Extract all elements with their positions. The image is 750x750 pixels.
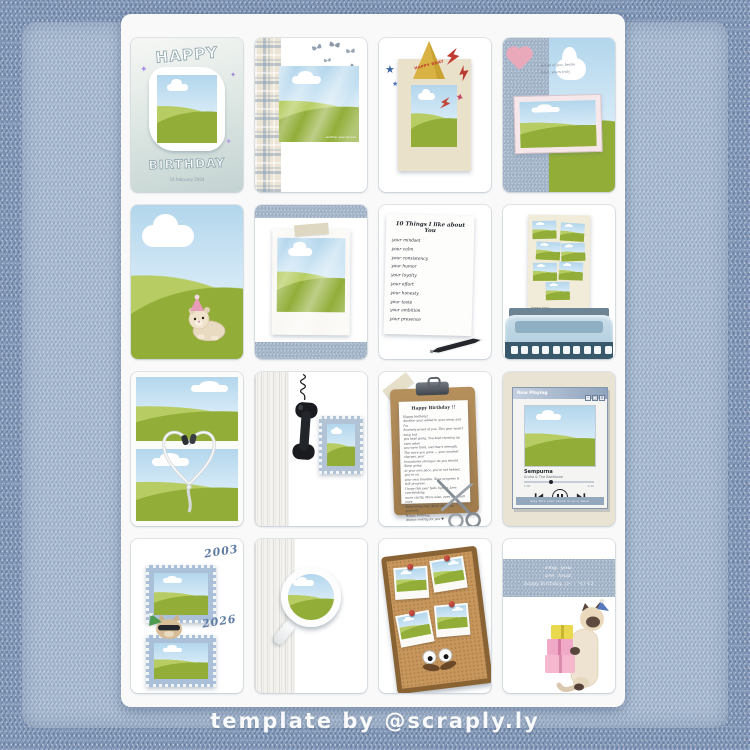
list-note-card: 10 Things I like about You your mindsety…	[379, 205, 491, 359]
birthday-text: BIRTHDAY	[131, 155, 243, 173]
star-icon: ★	[392, 81, 398, 88]
credit-caption: template by @scraply.ly	[0, 709, 750, 733]
landscape-photo	[519, 100, 596, 148]
list-items: your mindsetyour calmyour consistencyyou…	[390, 237, 468, 327]
message-line: are. loud.	[503, 572, 615, 580]
heart-frame-card: proud of you, bestie from, yours truly	[503, 38, 615, 192]
photo-caption: another year w/ you	[326, 135, 356, 139]
song-artist: Andra & The Backbone	[524, 475, 563, 479]
party-hamster-icon	[181, 293, 229, 341]
caption-line: old (O _ O )	[301, 663, 363, 671]
typewriter-keys	[511, 346, 612, 354]
landscape-photo	[432, 558, 465, 584]
pinned-photo	[393, 566, 429, 600]
corkboard-card	[379, 539, 491, 693]
pen-icon	[426, 335, 485, 356]
message-text: omg. you. are. loud. happy birthday. (>'…	[503, 559, 615, 587]
picture-frame	[514, 95, 601, 153]
balloon-frame	[149, 67, 225, 151]
plastic-wrap-overlay	[279, 66, 359, 142]
date-text: 14 february 2004	[131, 177, 243, 182]
balloon-frame-card: HAPPY ✦ ✦ ✦ BIRTHDAY 14 february 2004	[131, 38, 243, 192]
minimize-icon: –	[585, 395, 591, 401]
gift-cat-icon	[545, 599, 611, 693]
pinned-photo	[429, 556, 468, 593]
party-hat-card: HAPPY BDAY ★ ★ ✦	[379, 38, 491, 192]
scissors-icon	[426, 478, 491, 526]
landscape-photo	[395, 568, 426, 592]
pinned-photo	[434, 603, 471, 638]
wrapped-polaroid	[272, 229, 351, 336]
window-buttons: –□×	[584, 384, 605, 403]
close-icon: ×	[599, 395, 605, 401]
corkboard	[381, 546, 491, 693]
landscape-photo	[411, 85, 457, 147]
note-paper: 10 Things I like about You your mindsety…	[383, 214, 474, 336]
denim-background: HAPPY ✦ ✦ ✦ BIRTHDAY 14 february 2004 an…	[0, 0, 750, 750]
denim-band-top	[255, 205, 367, 218]
mini-photo	[536, 241, 561, 260]
time-elapsed: 1:30	[524, 484, 530, 488]
earphones-card	[131, 372, 243, 526]
hamster-card	[131, 205, 243, 359]
typewriter-paper: happy bday	[527, 215, 590, 316]
message-line: omg. you.	[503, 564, 615, 572]
stamp-photo-bottom	[146, 635, 216, 687]
landscape-photo	[157, 75, 217, 143]
magnifier-caption: OMG you're getting old (O _ O )	[301, 655, 363, 670]
mini-photo	[546, 282, 570, 301]
wood-panel	[255, 372, 289, 526]
butterfly-icon	[345, 47, 357, 57]
wrapped-photo-card	[255, 205, 367, 359]
plaid-ribbon	[255, 38, 281, 192]
sparkle-icon: ✦	[140, 66, 148, 75]
letter-title: Happy Birthday !!	[403, 405, 464, 412]
caption-line: OMG you're getting	[301, 655, 363, 663]
message-line: happy birthday. (>' - '<) <3	[503, 581, 615, 588]
mini-photo	[559, 262, 584, 281]
player-footer: may this year serve in your favor	[516, 497, 604, 505]
star-icon: ★	[385, 64, 395, 75]
year-2003: 2003	[204, 542, 240, 560]
window-titlebar: Now Playing –□×	[513, 388, 607, 399]
sparkle-icon: ✦	[230, 72, 236, 79]
tape-icon	[294, 223, 329, 237]
clipboard-clip-hook	[427, 377, 440, 388]
landscape-photo	[277, 238, 346, 313]
template-sheet: HAPPY ✦ ✦ ✦ BIRTHDAY 14 february 2004 an…	[121, 14, 625, 707]
landscape-photo	[436, 605, 468, 630]
mini-photo	[532, 221, 556, 240]
time-remaining: -4:10	[587, 484, 594, 488]
footer-note: may this year serve in your favor	[530, 499, 590, 503]
denim-band-bottom	[255, 342, 367, 359]
music-player-card: Now Playing –□× Sempurna Andra & The Bac…	[503, 372, 615, 526]
pinned-photo	[395, 610, 434, 648]
butterfly-icon	[310, 41, 325, 55]
landscape-photo	[154, 643, 208, 679]
landscape-photo	[288, 574, 334, 620]
butterfly-icon	[327, 39, 341, 52]
time-row: 1:30 -4:10	[524, 484, 594, 488]
heart-note: proud of you, bestie from, yours truly	[541, 61, 576, 76]
cool-cat-icon	[147, 613, 191, 639]
magnifier-card: OMG you're getting old (O _ O )	[255, 539, 367, 693]
gift-cat-card: omg. you. are. loud. happy birthday. (>'…	[503, 539, 615, 693]
maximize-icon: □	[592, 395, 598, 401]
landscape-photo	[154, 573, 208, 615]
butterfly-icon	[322, 56, 332, 65]
player-window: Now Playing –□× Sempurna Andra & The Bac…	[512, 387, 608, 509]
stamp-photo	[319, 416, 363, 474]
phone-cord-icon	[295, 372, 311, 404]
typewriter-card: happy bday	[503, 205, 615, 359]
mini-photo	[560, 222, 585, 241]
album-art	[524, 405, 596, 467]
heart-earphones-icon	[157, 424, 221, 516]
stamps-card: 2003 2026	[131, 539, 243, 693]
magnifier-lens	[281, 567, 341, 627]
telephone-card	[255, 372, 367, 526]
mini-photo	[561, 243, 586, 262]
note-line: from, yours truly	[541, 68, 576, 76]
sparkle-icon: ✦	[225, 138, 232, 146]
telephone-handset-icon	[291, 401, 319, 461]
list-title: 10 Things I like about You	[392, 221, 468, 235]
window-title: Now Playing	[515, 391, 547, 396]
clipboard-card: Happy Birthday !! Happy birthday!Another…	[379, 372, 491, 526]
landscape-photo	[327, 424, 355, 466]
message-band: omg. you. are. loud. happy birthday. (>'…	[503, 559, 615, 597]
butterfly-card: another year w/ you	[255, 38, 367, 192]
mini-photo	[533, 263, 557, 281]
landscape-photo	[398, 612, 432, 639]
wrapped-photo: another year w/ you	[279, 66, 359, 142]
progress-bar	[524, 481, 594, 483]
typewriter-panel	[515, 321, 603, 333]
